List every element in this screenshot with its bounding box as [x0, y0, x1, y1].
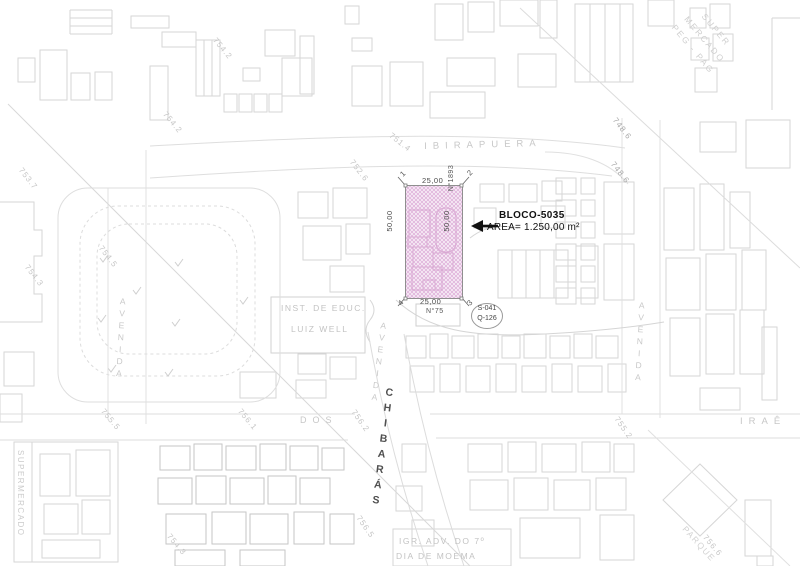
sector-label: S-041 [472, 305, 502, 312]
background-buildings [0, 0, 800, 566]
background-buildings-dense [158, 444, 354, 566]
place-label-inst-de-educ: INST. DE EDUC. [281, 303, 366, 313]
street-lines [0, 8, 800, 566]
quadra-label: Q-126 [472, 315, 502, 322]
place-label-supermercado: SUPERMERCADO [16, 450, 25, 552]
lot-dim-bottom: 25,00 [420, 297, 441, 306]
place-label-luiz-well: LUIZ WELL [291, 324, 348, 334]
lot-house-number-75: N°75 [426, 308, 444, 315]
cadastral-map: IBIRAPUERA AVENIDA AVENIDA AVENIDA CHIBA… [0, 0, 800, 566]
lot-dim-right: 50,00 [442, 206, 451, 236]
place-label-igr-adv: IGR. ADV. DO 7º [399, 536, 485, 546]
lot-highlight [406, 186, 463, 299]
park-outline [58, 188, 280, 402]
place-label-dia-de-moema: DIA DE MOEMA [396, 551, 476, 561]
lot-callout-block: BLOCO-5035 [499, 210, 565, 221]
lot-house-number-1893: N°1893 [448, 158, 455, 198]
lot-callout-area: AREA= 1.250,00 m² [487, 222, 580, 233]
lot-dim-top: 25,00 [422, 176, 443, 185]
street-label-dos: DOS [300, 415, 338, 425]
map-linework [0, 0, 800, 566]
street-label-irae: IRAÊ [740, 416, 786, 427]
lot-dim-left: 50,00 [385, 206, 394, 236]
